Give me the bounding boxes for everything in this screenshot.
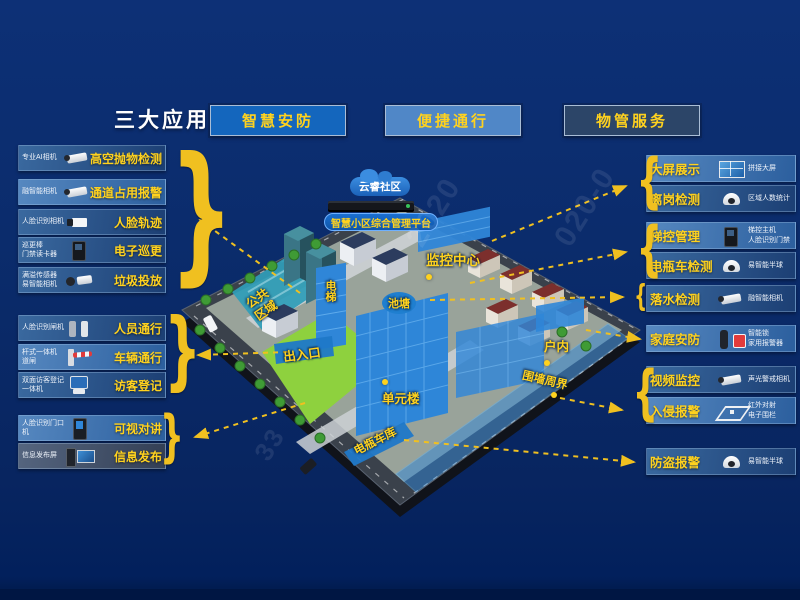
group-brace: { [637,153,663,210]
map-label-indoor: 户内 [544,322,569,369]
dashed-arrow [586,330,640,339]
dashed-arrow [492,186,626,241]
unit-building-text: 单元楼 [382,392,420,406]
map-anchor-dot [426,274,432,280]
indoor-text: 户内 [544,340,569,354]
map-label-pond: 池塘 [382,292,416,314]
group-brace: { [637,221,663,278]
map-anchor-dot [382,379,388,385]
smart-community-diagram: 2020 020-0 33 [0,0,800,600]
map-anchor-dot [544,360,550,366]
group-brace: { [634,283,647,312]
server-rack-icon [328,201,414,212]
map-label-monitor-center: 监控中心 [426,234,480,284]
platform-title: 智慧小区综合管理平台 [324,213,438,231]
group-brace: } [164,310,201,392]
dashed-arrow [470,252,626,283]
monitor-center-text: 监控中心 [426,253,480,268]
group-brace: } [169,142,233,285]
map-label-elevator: 电梯 [322,280,338,302]
group-brace: } [160,410,184,463]
dashed-arrow [560,398,622,410]
map-label-unit-building: 单元楼 [382,360,420,407]
dashed-arrow [198,352,288,355]
map-anchor-dot [551,392,557,398]
cloud-platform-label: 云睿社区 [350,177,410,196]
dashed-arrow [195,403,305,437]
group-brace: { [633,365,659,422]
dashed-arrow [404,440,634,462]
dashed-arrow [430,297,623,300]
